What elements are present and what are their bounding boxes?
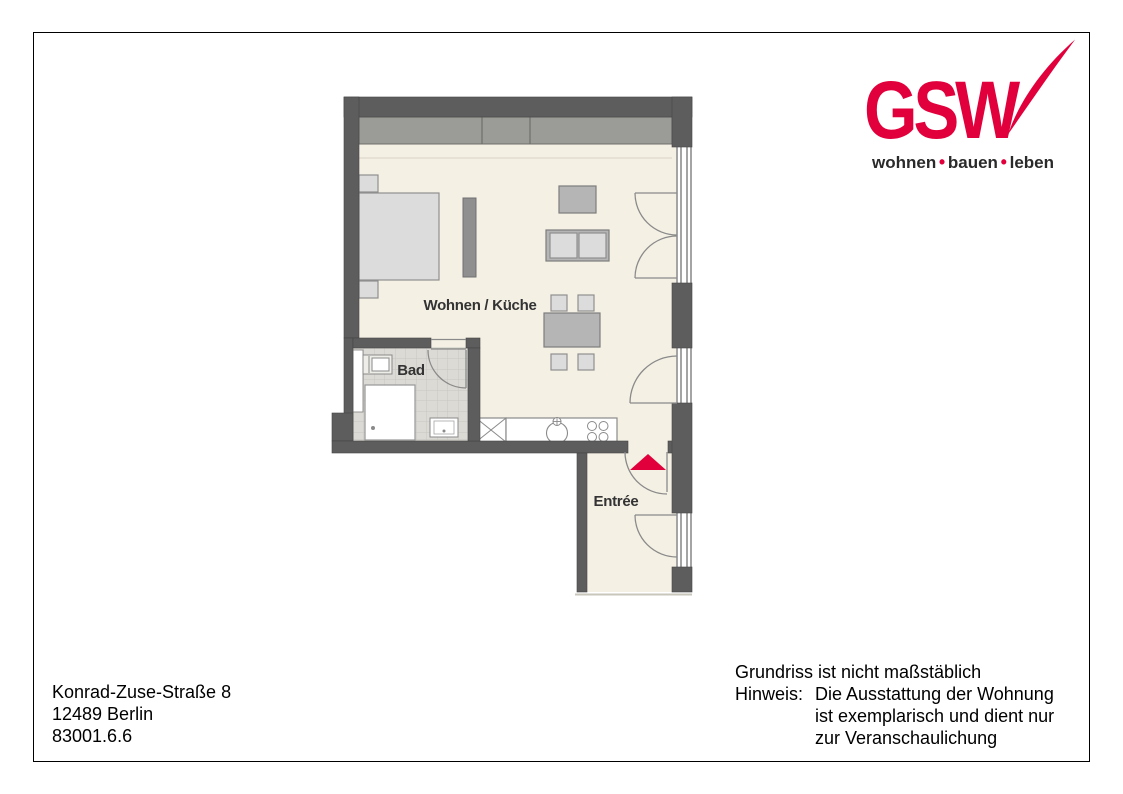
- disclaimer-block: Grundriss ist nicht maßstäblich Hinweis:…: [735, 661, 1054, 749]
- tagline-dot-icon: •: [939, 152, 945, 173]
- room-label-living-kitchen: Wohnen / Küche: [423, 297, 536, 314]
- room-label-entry: Entrée: [594, 493, 639, 510]
- window-pier-2: [672, 403, 692, 513]
- sofa-cushion: [579, 233, 606, 258]
- gsw-wordmark: GSW: [864, 70, 1016, 152]
- wall-bottom: [332, 441, 628, 453]
- address-street: Konrad-Zuse-Straße 8: [52, 681, 231, 703]
- bath-sink: [430, 418, 458, 437]
- window-pier-3: [672, 567, 692, 592]
- gsw-swoosh-icon: [1002, 38, 1076, 138]
- wall-bath-top: [353, 338, 431, 348]
- tv-board: [559, 186, 596, 213]
- gsw-logo: GSW wohnen • bauen • leben: [860, 38, 1080, 178]
- disclaimer-hinweis-text: Die Ausstattung der Wohnung ist exemplar…: [815, 683, 1054, 749]
- kitchen: [476, 418, 617, 444]
- bed: [359, 193, 439, 280]
- wall-entry-left: [577, 453, 587, 592]
- wall-left-step: [332, 413, 353, 441]
- toilet: [363, 355, 392, 374]
- nightstand-bottom: [359, 281, 378, 298]
- tagline-word: bauen: [948, 153, 998, 173]
- floorplan-page: Wohnen / Küche Bad Entrée GSW wohnen • b…: [0, 0, 1123, 794]
- wardrobe: [359, 117, 672, 144]
- entry-doorway-floor: [628, 440, 668, 454]
- duct-shaft: [353, 350, 363, 412]
- disclaimer-line: ist exemplarisch und dient nur: [815, 705, 1054, 727]
- disclaimer-scale-note: Grundriss ist nicht maßstäblich: [735, 661, 1054, 683]
- kitchen-tall-cabinet: [476, 418, 506, 442]
- window-pier-1: [672, 283, 692, 348]
- disclaimer-line: Die Ausstattung der Wohnung: [815, 683, 1054, 705]
- wall-top: [344, 97, 692, 117]
- wall-left: [344, 97, 359, 338]
- dining-table: [544, 313, 600, 347]
- sofa: [546, 230, 609, 261]
- window-glazing: [676, 147, 692, 593]
- nightstand-top: [359, 175, 378, 192]
- wall-bath-corner: [466, 338, 480, 348]
- disclaimer-line: zur Veranschaulichung: [815, 727, 1054, 749]
- window-strip: [676, 147, 692, 593]
- tagline-dot-icon: •: [1001, 152, 1007, 173]
- address-block: Konrad-Zuse-Straße 8 12489 Berlin 83001.…: [52, 681, 231, 747]
- address-city: 12489 Berlin: [52, 703, 231, 725]
- wall-corner-ne: [672, 97, 692, 147]
- room-label-bath: Bad: [397, 362, 425, 379]
- apartment-number: 83001.6.6: [52, 725, 231, 747]
- tagline-word: leben: [1010, 153, 1054, 173]
- wall-bath-right: [468, 348, 480, 441]
- entry-floor: [587, 443, 676, 592]
- disclaimer-hinweis-label: Hinweis:: [735, 683, 815, 749]
- kitchen-faucet-icon: [553, 418, 561, 426]
- gsw-tagline: wohnen • bauen • leben: [872, 152, 1054, 173]
- chair: [551, 295, 567, 311]
- chair: [551, 354, 567, 370]
- tagline-word: wohnen: [872, 153, 936, 173]
- chair: [578, 354, 594, 370]
- sideboard: [463, 198, 476, 277]
- sofa-cushion: [550, 233, 577, 258]
- shower: [365, 385, 415, 440]
- chair: [578, 295, 594, 311]
